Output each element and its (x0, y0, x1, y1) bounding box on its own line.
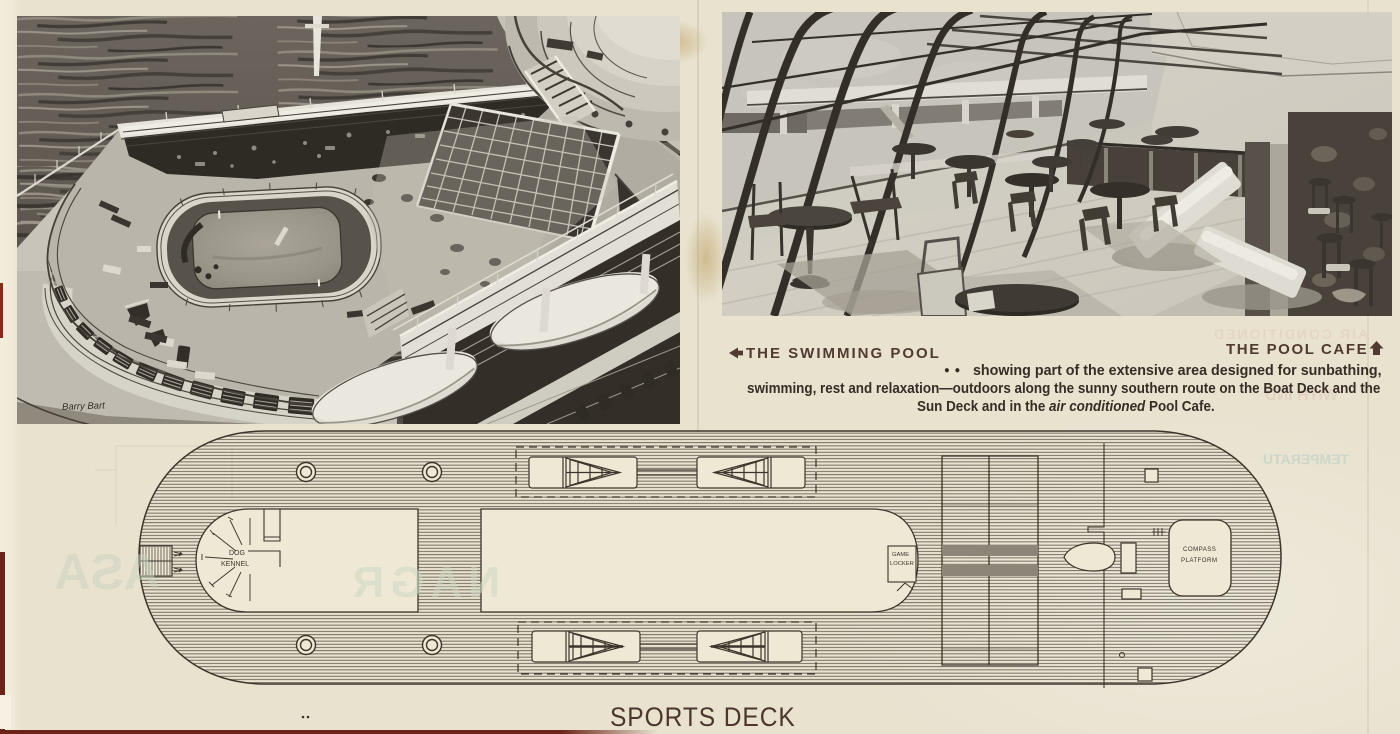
svg-text:PLATFORM: PLATFORM (1181, 557, 1217, 564)
svg-text:KENNEL: KENNEL (221, 561, 249, 568)
svg-text:COMPASS: COMPASS (1183, 546, 1216, 553)
svg-text:DOG: DOG (229, 550, 245, 557)
svg-text:GAME: GAME (892, 552, 909, 558)
svg-text:LOCKER: LOCKER (890, 561, 914, 567)
